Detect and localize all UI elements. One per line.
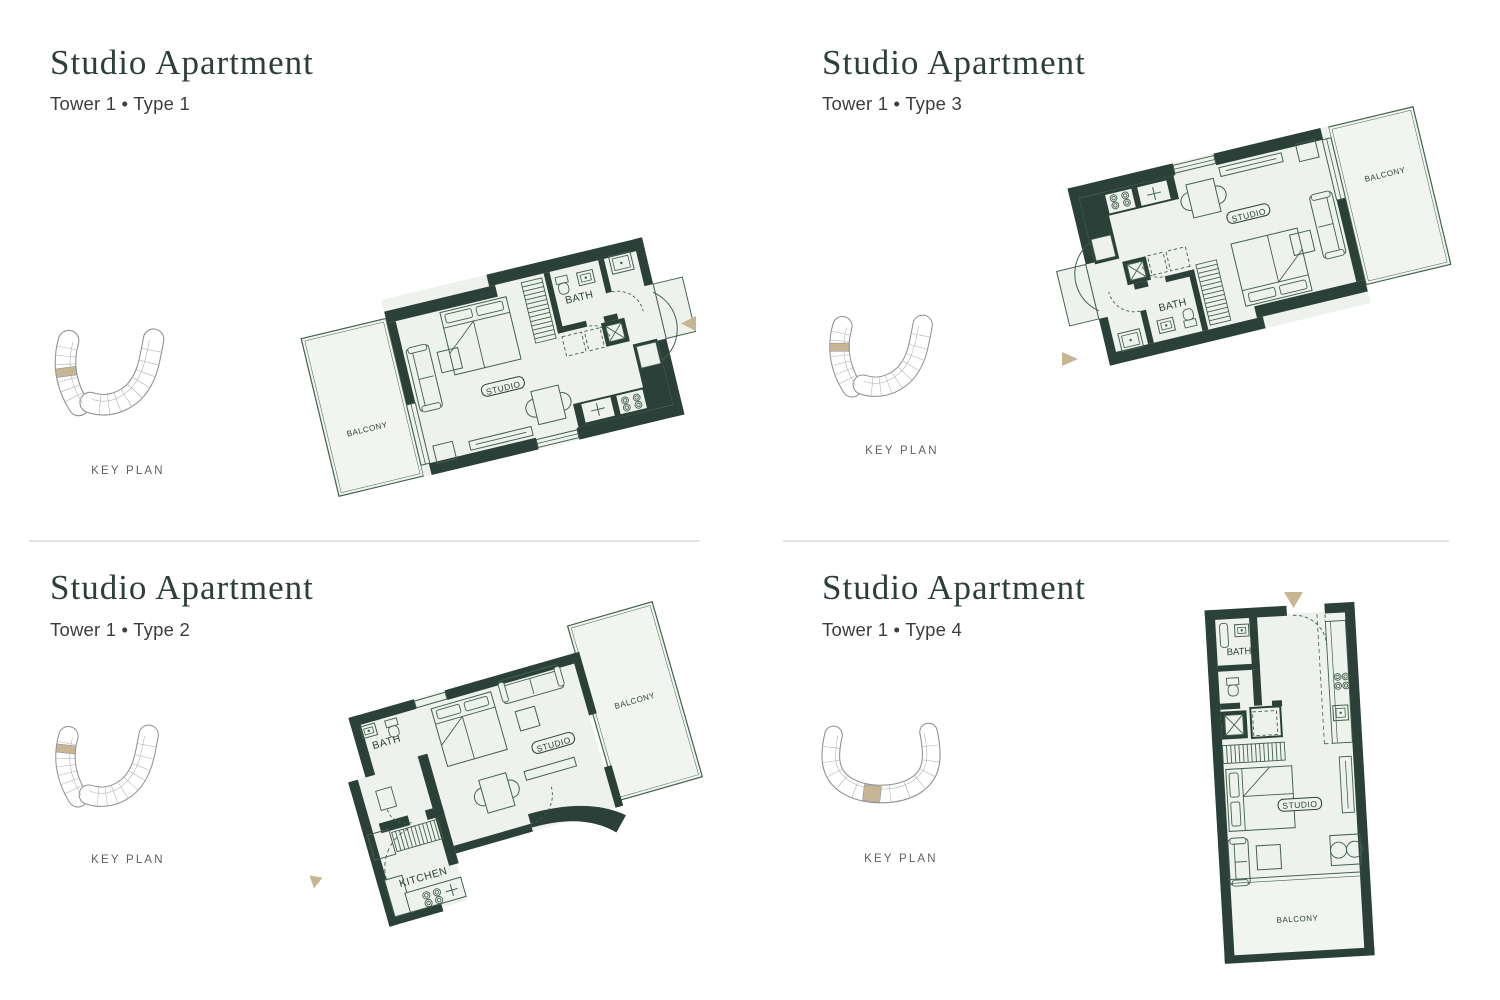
svg-text:Tower 1 • Type 1: Tower 1 • Type 1 xyxy=(50,93,190,114)
svg-text:KEY PLAN: KEY PLAN xyxy=(91,465,165,477)
svg-text:Studio Apartment: Studio Apartment xyxy=(822,568,1086,607)
svg-text:KEY PLAN: KEY PLAN xyxy=(864,853,938,865)
svg-text:Studio Apartment: Studio Apartment xyxy=(50,568,314,607)
svg-text:KEY PLAN: KEY PLAN xyxy=(91,854,165,866)
svg-text:Tower 1 • Type 2: Tower 1 • Type 2 xyxy=(50,619,190,640)
svg-text:Studio Apartment: Studio Apartment xyxy=(822,43,1086,82)
svg-text:Tower 1 • Type 4: Tower 1 • Type 4 xyxy=(822,619,962,640)
svg-text:BATH: BATH xyxy=(1226,646,1251,658)
svg-text:KEY PLAN: KEY PLAN xyxy=(865,445,939,457)
svg-text:STUDIO: STUDIO xyxy=(1282,799,1318,811)
svg-text:Studio Apartment: Studio Apartment xyxy=(50,43,314,82)
svg-text:Tower 1 • Type 3: Tower 1 • Type 3 xyxy=(822,93,962,114)
